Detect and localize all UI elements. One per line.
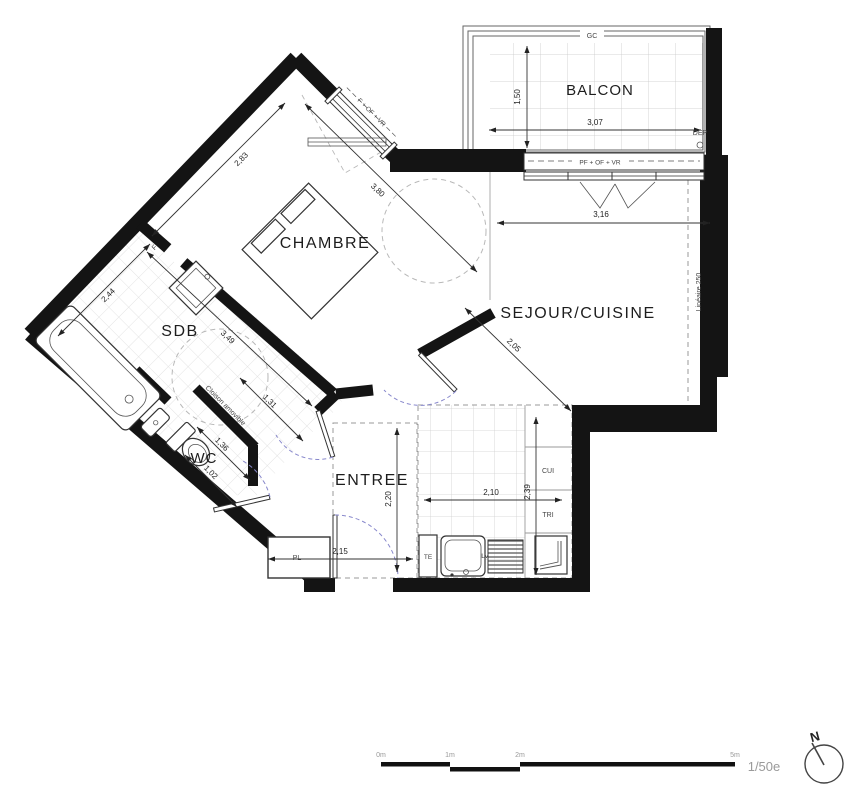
scale-tick-2: 2m — [515, 752, 525, 759]
te-label: TE — [424, 554, 433, 561]
scale-tick-1: 1m — [445, 752, 455, 759]
scale-ratio: 1/50e — [748, 759, 781, 774]
scale-tick-0: 0m — [376, 752, 386, 759]
bedroom-door — [384, 353, 457, 406]
living-room-bay-window: PF + OF + VR — [524, 153, 704, 208]
lv-label: LV — [481, 553, 489, 560]
room-label-sdb: SDB — [161, 323, 198, 340]
dim-balcon-width: 3,07 — [587, 118, 603, 127]
cui-label: CUI — [542, 468, 554, 475]
pl-label: PL — [293, 555, 302, 562]
dim-entree-width: 2,15 — [332, 547, 348, 556]
floor-plan-drawing: F + OF + VR PF + OF + VR — [0, 0, 868, 800]
tri-label: TRI — [542, 512, 553, 519]
floor-plan-page: F + OF + VR PF + OF + VR — [0, 0, 868, 800]
bedroom-window: F + OF + VR — [325, 81, 403, 159]
living-window-label: PF + OF + VR — [579, 160, 620, 167]
room-label-chambre: CHAMBRE — [280, 235, 371, 252]
dim-cuisine-width: 2,10 — [483, 488, 499, 497]
dim-sejour-diag: 2,05 — [505, 337, 523, 355]
room-label-sejour: SEJOUR/CUISINE — [500, 305, 655, 322]
lineaire-label: Linéaire 250 — [696, 273, 703, 312]
dim-entree-depth: 2,20 — [384, 491, 393, 507]
dep-label: DEP — [693, 130, 708, 137]
dishwasher — [488, 540, 523, 573]
north-compass-icon: N — [805, 728, 843, 783]
scale-tick-3: 5m — [730, 752, 740, 759]
scale-bar: 0m 1m 2m 5m 1/50e — [376, 752, 780, 774]
north-letter: N — [808, 728, 821, 745]
dim-sejour-width: 3,16 — [593, 210, 609, 219]
dim-balcon-depth: 1,50 — [513, 89, 522, 105]
dim-chambre-ne: 3,80 — [369, 182, 387, 200]
room-label-balcon: BALCON — [566, 82, 634, 99]
fridge-corner-unit — [535, 536, 567, 574]
kitchen-sink — [441, 536, 485, 577]
room-label-wc: WC — [191, 450, 218, 467]
gc-label: GC — [587, 33, 598, 40]
dim-cuisine-depth: 2,39 — [523, 484, 532, 500]
room-label-entree: ENTREE — [335, 472, 409, 489]
